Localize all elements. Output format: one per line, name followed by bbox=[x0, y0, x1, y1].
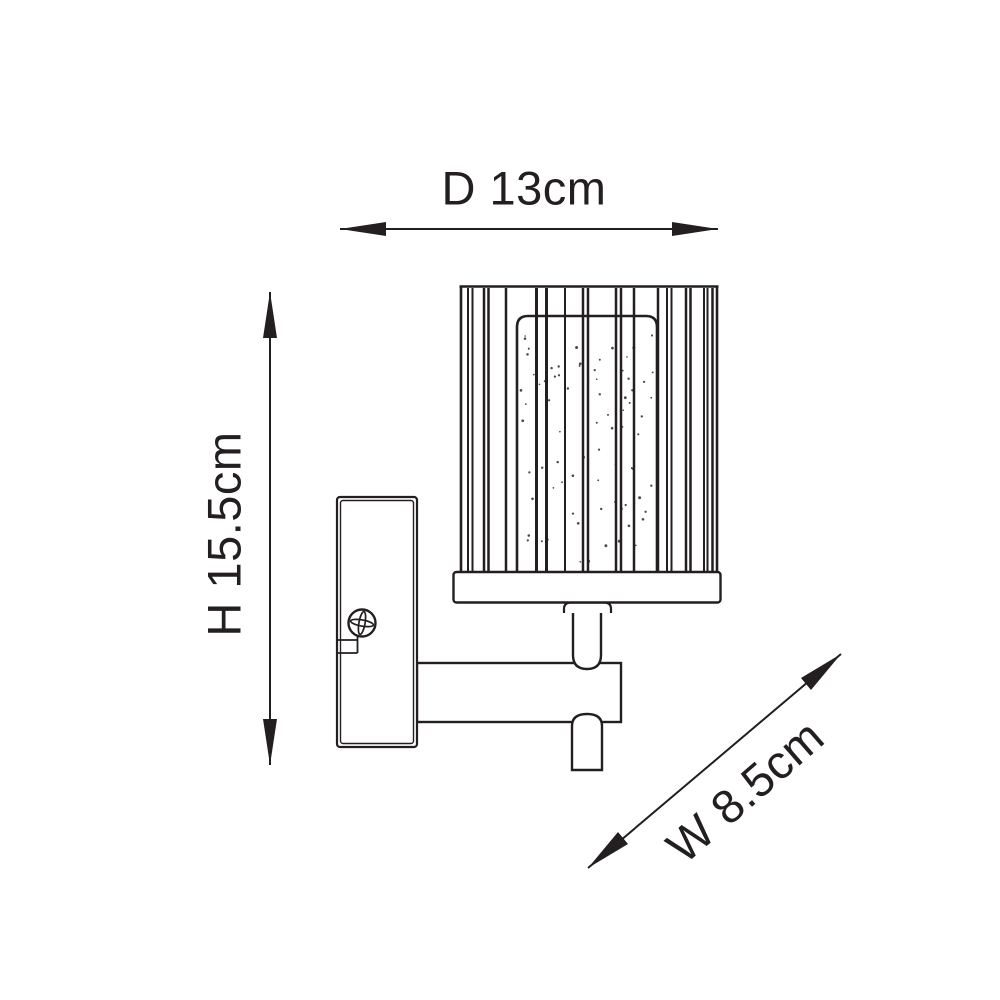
wall-light-line-drawing bbox=[0, 0, 1000, 1000]
shade bbox=[460, 287, 719, 573]
collar bbox=[564, 603, 611, 614]
shade-base-plate bbox=[454, 572, 721, 603]
depth-arrow bbox=[340, 222, 718, 236]
mounting-screw-icon bbox=[349, 610, 376, 637]
height-arrow bbox=[263, 292, 277, 765]
height-dimension-label: H 15.5cm bbox=[197, 431, 252, 636]
stem-lower bbox=[572, 714, 602, 770]
wall-plate bbox=[337, 497, 417, 747]
stem-upper bbox=[573, 613, 601, 669]
dimension-diagram-canvas: D 13cm H 15.5cm W 8.5cm bbox=[0, 0, 1000, 1000]
depth-dimension-label: D 13cm bbox=[442, 161, 607, 216]
